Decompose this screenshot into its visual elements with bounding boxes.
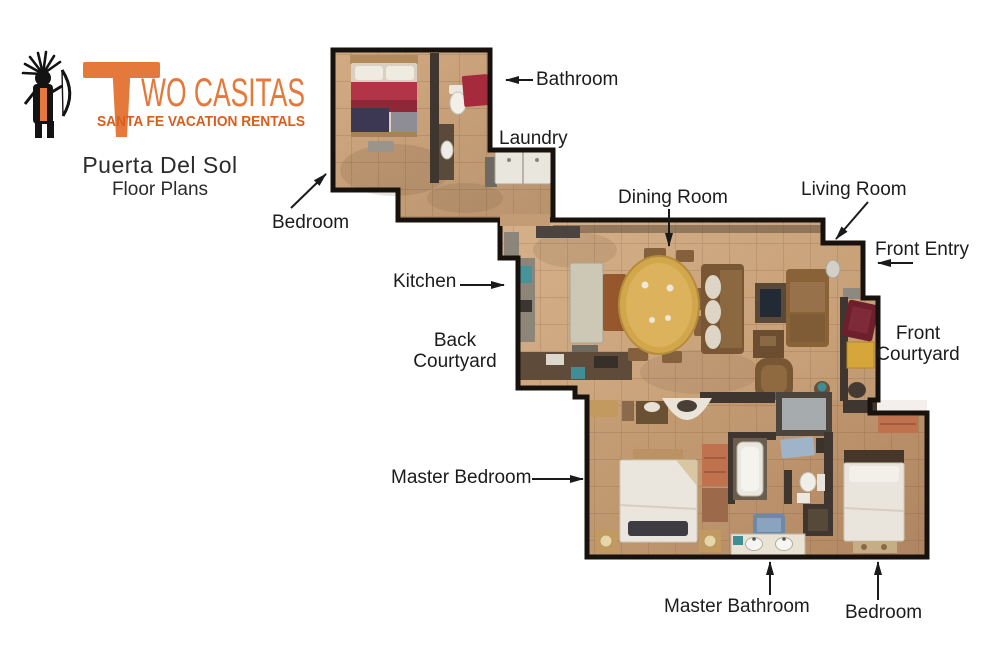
label-master-bathroom: Master Bathroom (664, 597, 810, 618)
casita-interior-wall (430, 53, 439, 183)
label-kitchen: Kitchen (393, 272, 456, 293)
bathtub (733, 438, 767, 500)
loveseat (786, 269, 829, 347)
label-bedroom-upper: Bedroom (272, 213, 349, 234)
sofa (701, 264, 744, 354)
label-living-room: Living Room (801, 180, 907, 201)
kitchen-sink (519, 266, 532, 283)
floor-plan-page: WO CASITAS SANTA FE VACATION RENTALS Pue… (0, 0, 1000, 665)
guest-bed (350, 55, 418, 137)
label-master-bedroom: Master Bedroom (391, 468, 531, 489)
label-front-entry: Front Entry (875, 240, 969, 261)
label-front-courtyard: Front Courtyard (868, 324, 968, 365)
north-wall-shadow (553, 225, 825, 233)
courtyard-pot (848, 382, 866, 398)
stove (536, 226, 580, 238)
tv-console (755, 283, 786, 323)
label-bedroom-lower: Bedroom (845, 603, 922, 624)
hall-bench (590, 400, 618, 417)
arrow-living-room (836, 202, 868, 239)
bedroom2-bed (844, 450, 904, 541)
arrow-bedroom-upper (291, 174, 326, 208)
red-bath-rug (462, 74, 491, 107)
master-dressers (702, 444, 728, 522)
guest-bathroom-vanity (439, 124, 454, 180)
label-dining-room: Dining Room (618, 188, 728, 209)
kitchen-island (570, 263, 603, 343)
master-toilet-icon (800, 473, 825, 492)
washer-dryer (485, 151, 551, 187)
blue-bath-rug (780, 436, 815, 458)
shower (776, 392, 832, 436)
label-back-courtyard: Back Courtyard (405, 331, 505, 372)
bedroom2-bench (853, 541, 897, 553)
master-bed (620, 449, 697, 542)
casita-passage-opening (500, 214, 550, 226)
entry-sculpture (826, 260, 840, 278)
guest-bedroom-bench (368, 141, 394, 152)
label-bathroom: Bathroom (536, 70, 618, 91)
label-laundry: Laundry (499, 129, 568, 150)
vanity-sinks (731, 534, 805, 555)
